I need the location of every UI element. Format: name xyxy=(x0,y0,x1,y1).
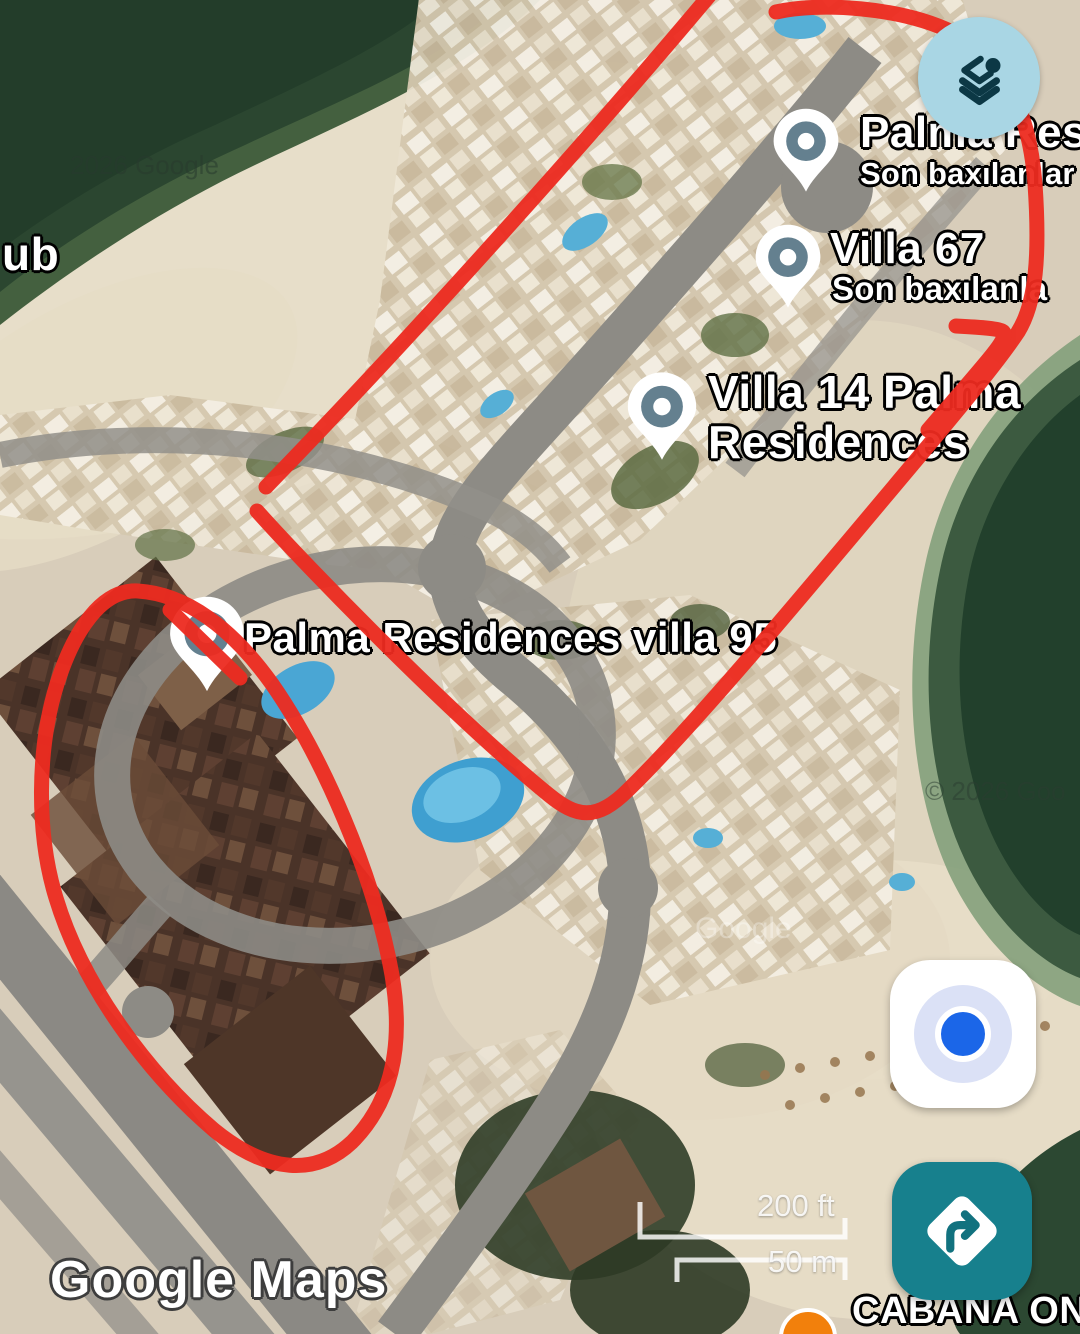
scale-metric-label: 50 m xyxy=(768,1244,837,1280)
layers-icon xyxy=(949,48,1009,108)
blue-dot-icon xyxy=(935,1006,991,1062)
pin-villa-95[interactable] xyxy=(166,596,248,696)
satellite-map[interactable] xyxy=(0,0,1080,1334)
pin-label-villa-95: Palma Residences villa 95 xyxy=(244,616,777,660)
pin-label-villa-67: Villa 67 xyxy=(830,226,985,272)
scale-imperial-label: 200 ft xyxy=(757,1188,835,1224)
directions-button[interactable] xyxy=(892,1162,1032,1300)
clipped-place-label: ub xyxy=(2,230,59,278)
map-pin-icon xyxy=(166,596,248,696)
directions-icon xyxy=(919,1188,1005,1274)
pin-sublabel-palma-residences: Son baxılanlar xyxy=(860,158,1075,191)
map-attribution-left: 2026 Google xyxy=(70,150,219,181)
pin-palma-residences[interactable] xyxy=(770,108,842,196)
map-pin-icon xyxy=(624,372,700,464)
pin-villa-67[interactable] xyxy=(752,224,824,312)
pin-label-villa-14-line1: Villa 14 Palma xyxy=(708,368,1021,416)
pin-sublabel-villa-67: Son baxılanla xyxy=(832,272,1047,307)
pin-villa-14[interactable] xyxy=(624,372,700,464)
google-maps-satellite-view[interactable]: 2026 Google © 2026 Goo Google ub Palma R… xyxy=(0,0,1080,1334)
layers-button[interactable] xyxy=(918,17,1040,139)
map-attribution-right: © 2026 Goo xyxy=(925,776,1066,807)
map-pin-icon xyxy=(752,224,824,312)
map-pin-icon xyxy=(770,108,842,196)
pin-label-villa-14-line2: Residences xyxy=(708,418,969,466)
location-accuracy-circle xyxy=(914,985,1012,1083)
my-location-button[interactable] xyxy=(890,960,1036,1108)
google-maps-logo: Google Maps xyxy=(50,1250,387,1310)
map-attribution-center: Google xyxy=(695,912,792,946)
